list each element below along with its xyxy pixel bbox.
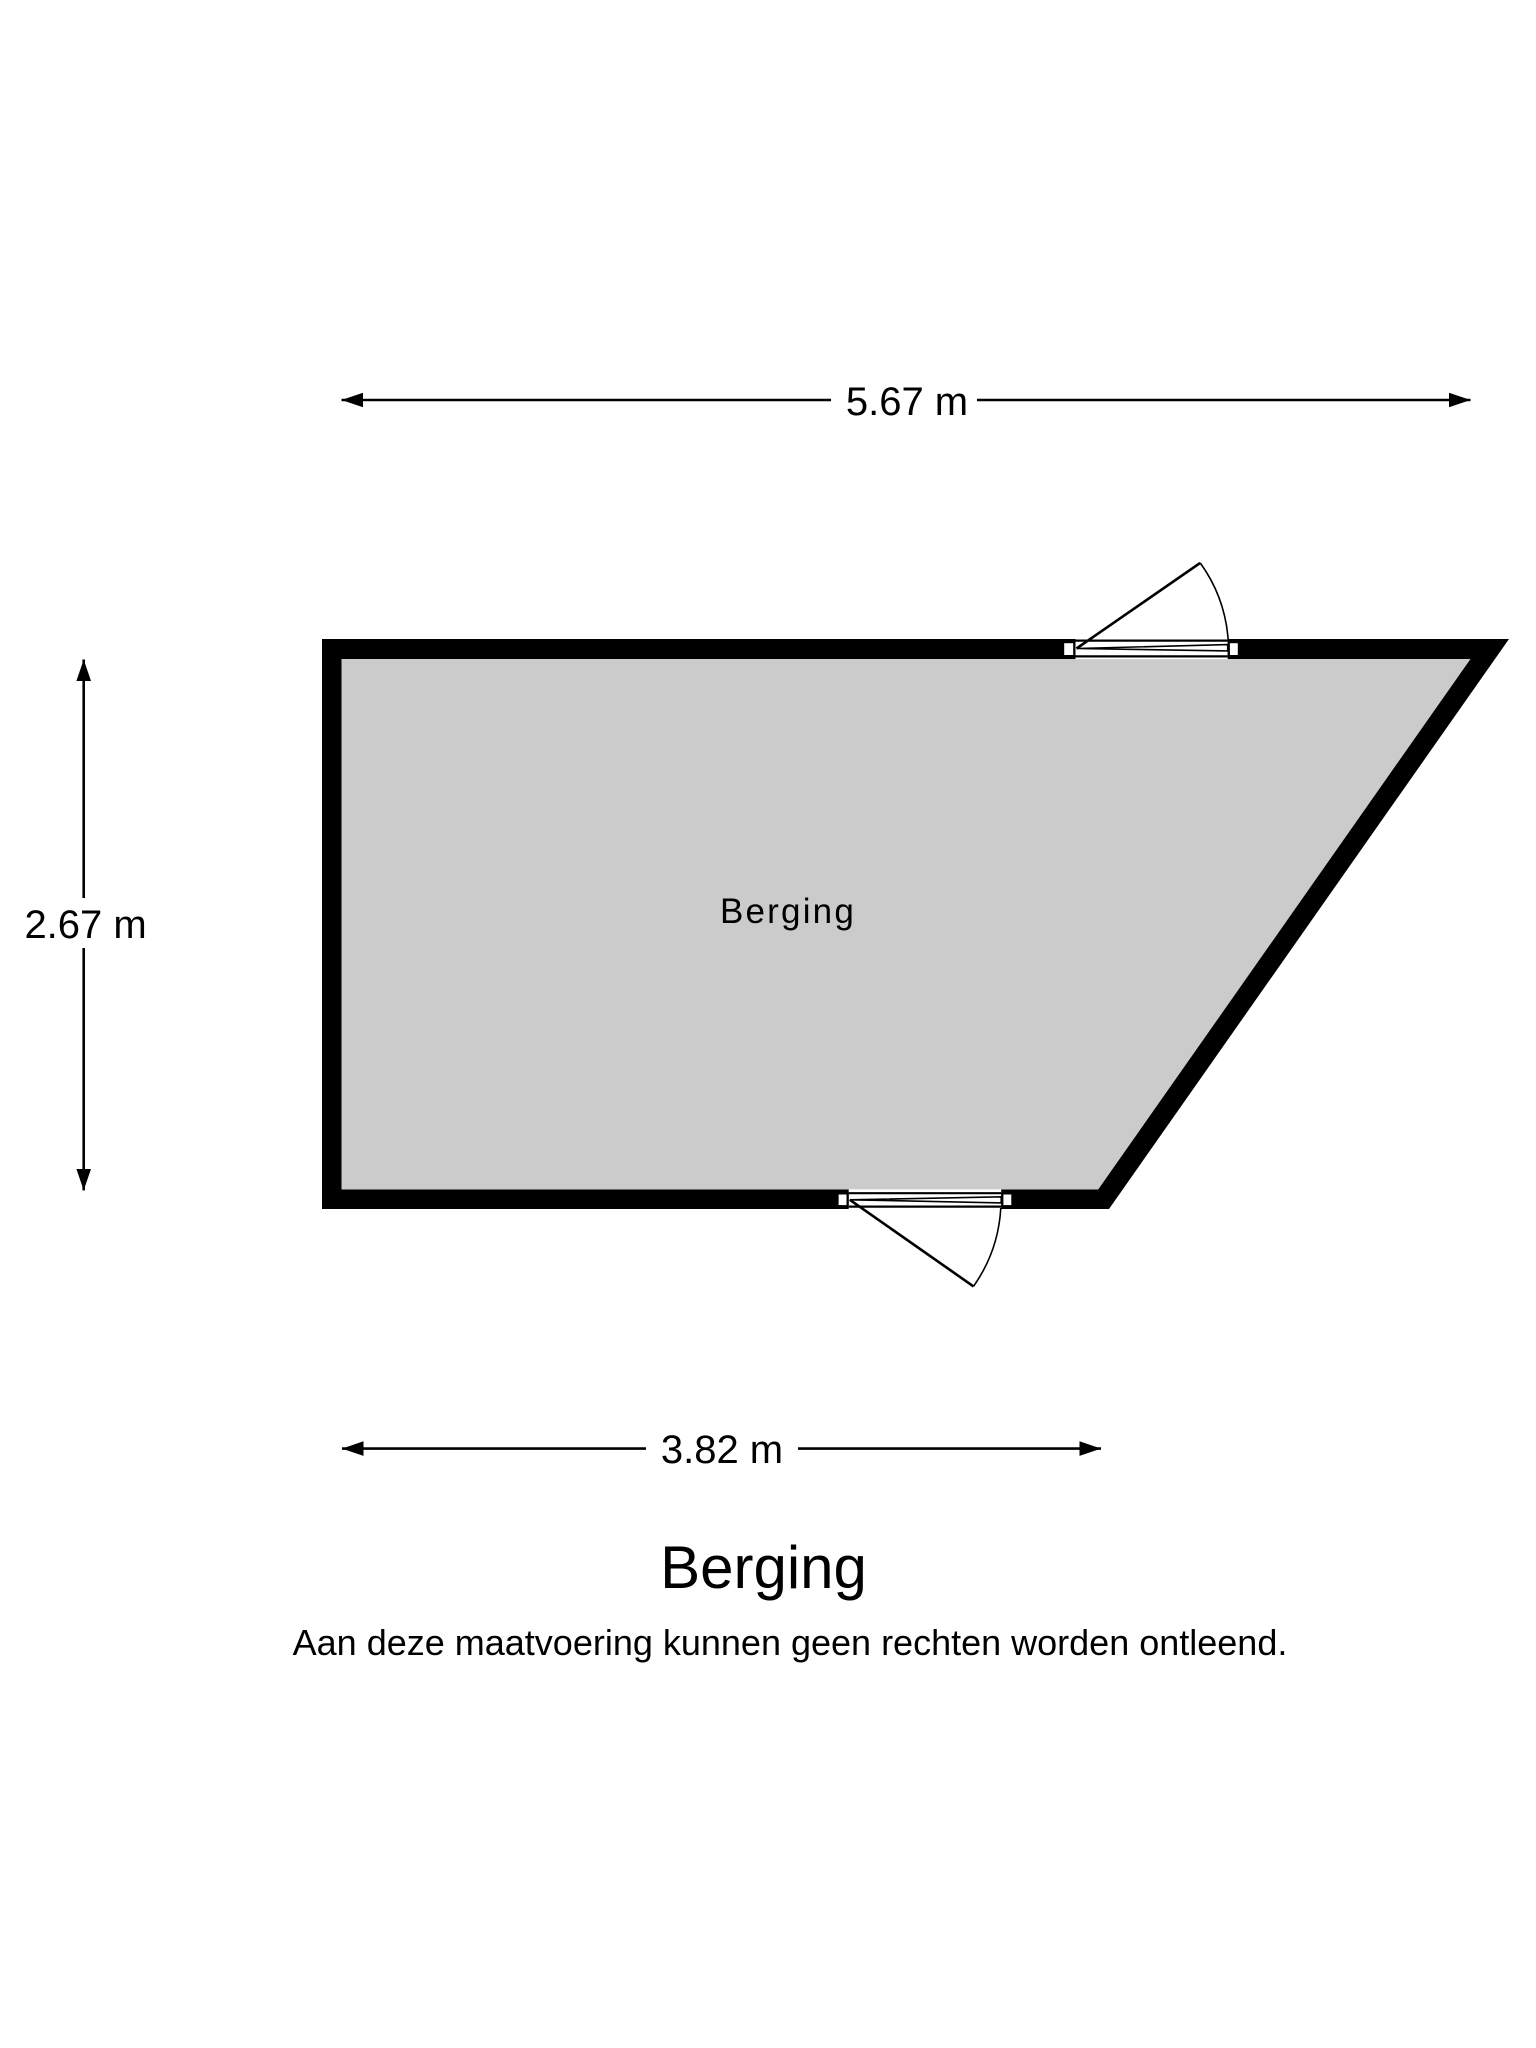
svg-text:3.82 m: 3.82 m	[661, 1428, 783, 1472]
svg-text:Berging: Berging	[720, 892, 856, 931]
svg-text:5.67 m: 5.67 m	[846, 380, 968, 424]
svg-text:2.67 m: 2.67 m	[24, 903, 146, 947]
svg-text:Aan deze maatvoering kunnen ge: Aan deze maatvoering kunnen geen rechten…	[293, 1622, 1288, 1663]
svg-text:Berging: Berging	[660, 1534, 867, 1601]
